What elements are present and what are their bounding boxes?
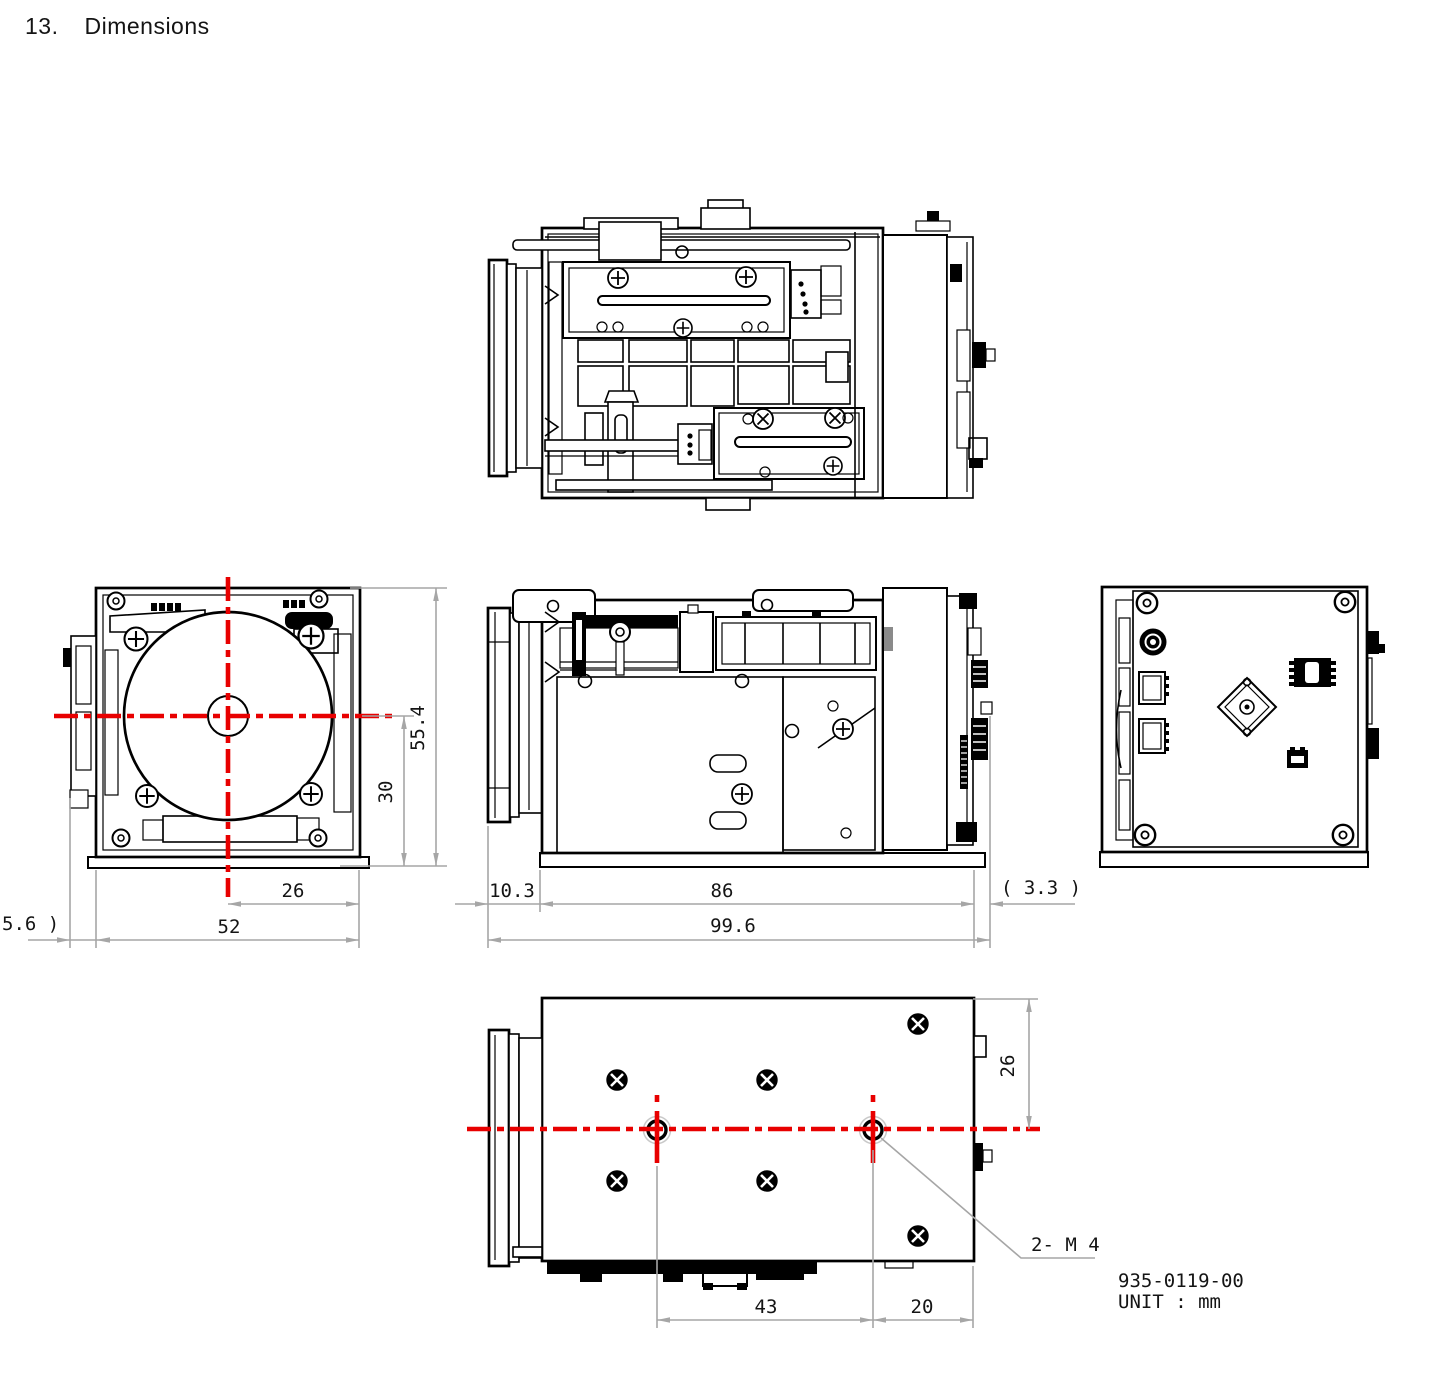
lens-cap-bottom (489, 1030, 509, 1266)
lens-cap-side (488, 608, 510, 822)
dimension-drawing: 26 52 5.6 ) 55.4 30 (0, 0, 1445, 1382)
back-view (1100, 587, 1385, 867)
dim-side-rear-protrusion: ( 3.3 ) (1001, 877, 1081, 899)
top-view (489, 200, 995, 510)
dim-front-overall-width: 52 (218, 916, 241, 938)
dim-side-body-length: 86 (711, 880, 734, 902)
dim-side-lens-front: 10.3 (489, 880, 535, 902)
side-view (488, 588, 992, 867)
dim-front-center-to-bottom: 30 (375, 781, 397, 804)
dim-front-left-protrusion: 5.6 ) (2, 913, 59, 935)
title-block: 935-0119-00 UNIT : mm (1118, 1270, 1244, 1313)
unit-note: UNIT : mm (1118, 1291, 1221, 1313)
dim-front-center-to-right: 26 (282, 880, 305, 902)
dim-bottom-hole-to-rear: 20 (911, 1296, 934, 1318)
dim-bottom-rear-to-center: 26 (997, 1055, 1019, 1078)
dim-side-overall-length: 99.6 (710, 915, 756, 937)
lens-cap-top (489, 260, 507, 476)
thread-callout-label: 2- M 4 (1031, 1234, 1100, 1256)
dimensions-page: 13. Dimensions (0, 0, 1445, 1382)
part-number: 935-0119-00 (1118, 1270, 1244, 1292)
front-view (63, 588, 369, 868)
bottom-view (489, 998, 992, 1290)
dim-bottom-hole-spacing: 43 (755, 1296, 778, 1318)
dim-front-overall-height: 55.4 (407, 705, 429, 751)
